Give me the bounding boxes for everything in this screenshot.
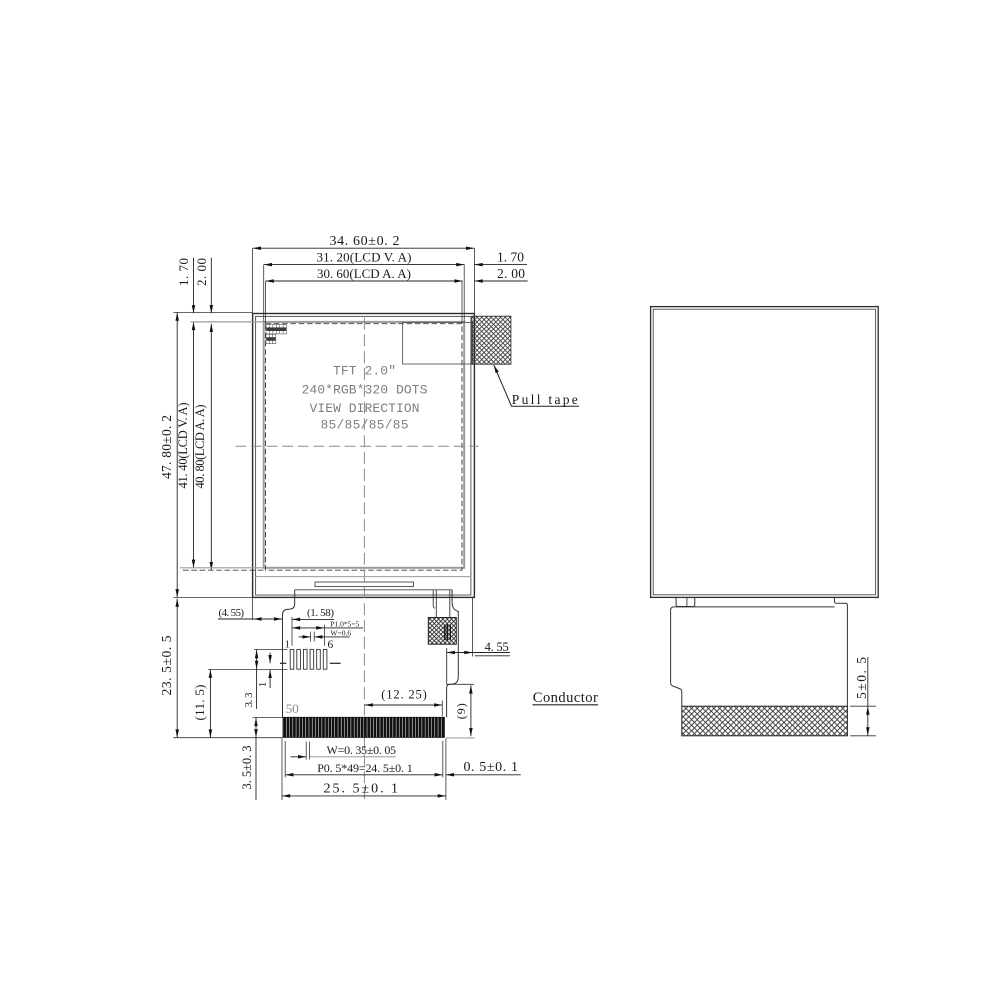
svg-text:5±0. 5: 5±0. 5	[854, 657, 869, 699]
svg-text:W=0. 35±0. 05: W=0. 35±0. 05	[327, 743, 397, 757]
svg-text:(12. 25): (12. 25)	[381, 688, 427, 702]
svg-text:50: 50	[286, 701, 299, 716]
svg-text:3. 5±0. 3: 3. 5±0. 3	[240, 746, 254, 790]
svg-text:23. 5±0. 5: 23. 5±0. 5	[159, 635, 174, 695]
svg-text:40. 80(LCD A. A): 40. 80(LCD A. A)	[193, 405, 207, 489]
svg-text:1. 70: 1. 70	[497, 249, 524, 264]
svg-text:3. 3: 3. 3	[243, 692, 255, 708]
svg-text:240*RGB*320 DOTS: 240*RGB*320 DOTS	[302, 383, 428, 398]
svg-text:TFT 2.0″: TFT 2.0″	[333, 364, 396, 379]
svg-text:(1. 58): (1. 58)	[307, 607, 334, 619]
svg-text:30. 60(LCD A. A): 30. 60(LCD A. A)	[317, 266, 411, 281]
svg-text:6: 6	[328, 639, 334, 651]
svg-text:2. 00: 2. 00	[497, 266, 525, 281]
svg-text:1: 1	[257, 682, 269, 688]
svg-text:25. 5±0. 1: 25. 5±0. 1	[324, 782, 399, 797]
svg-text:(11. 5): (11. 5)	[192, 685, 207, 721]
svg-text:47. 80±0. 2: 47. 80±0. 2	[159, 415, 174, 479]
svg-text:(9): (9)	[454, 703, 468, 719]
svg-text:1. 70: 1. 70	[176, 258, 191, 286]
svg-text:31. 20(LCD V. A): 31. 20(LCD V. A)	[317, 249, 412, 264]
svg-text:41. 40(LCD V. A): 41. 40(LCD V. A)	[176, 403, 190, 489]
svg-text:1: 1	[285, 639, 290, 650]
svg-text:Pull tape: Pull tape	[512, 392, 578, 407]
svg-text:0. 5±0. 1: 0. 5±0. 1	[463, 760, 518, 775]
svg-text:P0. 5*49=24. 5±0. 1: P0. 5*49=24. 5±0. 1	[317, 761, 413, 775]
svg-text:2. 00: 2. 00	[194, 258, 209, 286]
svg-text:Conductor: Conductor	[533, 690, 598, 706]
svg-text:P1.0*5=5: P1.0*5=5	[330, 619, 359, 628]
svg-text:VIEW DIRECTION: VIEW DIRECTION	[310, 401, 420, 416]
svg-text:34. 60±0. 2: 34. 60±0. 2	[330, 234, 400, 249]
svg-text:4. 55: 4. 55	[485, 640, 509, 654]
svg-text:W=0.6: W=0.6	[330, 628, 351, 637]
svg-text:(4. 55): (4. 55)	[219, 607, 245, 619]
svg-text:85/85/85/85: 85/85/85/85	[321, 417, 409, 432]
